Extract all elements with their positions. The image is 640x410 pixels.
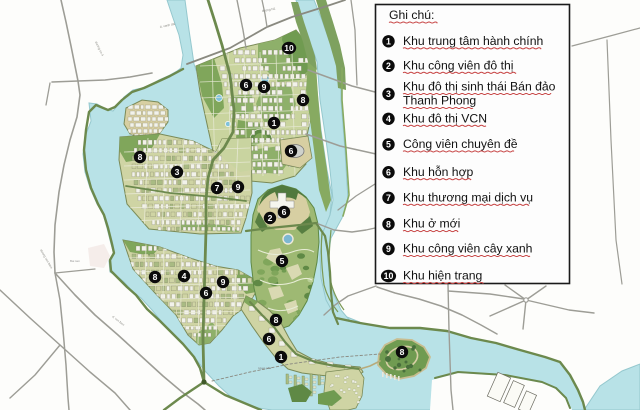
- svg-text:6: 6: [289, 146, 294, 156]
- svg-text:8: 8: [301, 95, 306, 105]
- svg-text:4: 4: [386, 114, 391, 124]
- svg-text:6: 6: [244, 80, 249, 90]
- svg-text:10: 10: [284, 43, 294, 53]
- svg-text:9: 9: [236, 182, 241, 192]
- svg-text:6: 6: [282, 207, 287, 217]
- svg-text:5: 5: [386, 140, 391, 150]
- svg-text:6: 6: [204, 288, 209, 298]
- svg-text:1: 1: [386, 37, 391, 47]
- svg-text:1: 1: [279, 352, 284, 362]
- svg-text:8: 8: [400, 347, 405, 357]
- svg-text:Khu ở mới: Khu ở mới: [403, 217, 460, 231]
- svg-text:1: 1: [272, 118, 277, 128]
- svg-text:7: 7: [386, 193, 391, 203]
- svg-text:10: 10: [384, 271, 394, 281]
- svg-text:3: 3: [386, 89, 391, 99]
- svg-text:Khu thương mại dịch vụ: Khu thương mại dịch vụ: [403, 190, 533, 204]
- svg-text:Khu công viên đô thị: Khu công viên đô thị: [403, 58, 513, 72]
- svg-text:9: 9: [221, 277, 226, 287]
- svg-text:Khu công viên cây xanh: Khu công viên cây xanh: [403, 242, 532, 256]
- svg-text:9: 9: [386, 244, 391, 254]
- svg-text:Khu trung tâm hành chính: Khu trung tâm hành chính: [403, 34, 543, 48]
- svg-text:3: 3: [175, 167, 180, 177]
- svg-text:8: 8: [138, 152, 143, 162]
- svg-text:2: 2: [386, 61, 391, 71]
- svg-text:8: 8: [274, 315, 279, 325]
- svg-text:4: 4: [182, 271, 187, 281]
- svg-text:Khu hỗn hợp: Khu hỗn hợp: [403, 164, 474, 179]
- svg-text:8: 8: [386, 219, 391, 229]
- svg-text:Bai tam: Bai tam: [70, 259, 81, 263]
- svg-text:Ghi chú:: Ghi chú:: [389, 8, 434, 22]
- svg-text:Khu đô thị sinh thái Bán đảo: Khu đô thị sinh thái Bán đảo: [403, 80, 556, 94]
- svg-text:Thanh Phong: Thanh Phong: [403, 94, 476, 108]
- svg-text:Khu đô thị VCN: Khu đô thị VCN: [403, 111, 487, 125]
- svg-text:Công viên chuyên đề: Công viên chuyên đề: [403, 137, 518, 151]
- svg-text:6: 6: [386, 167, 391, 177]
- svg-text:9: 9: [262, 82, 267, 92]
- svg-text:5: 5: [280, 256, 285, 266]
- svg-text:tuyen pha: tuyen pha: [258, 366, 272, 370]
- svg-text:Khu hiện trang: Khu hiện trang: [403, 269, 482, 283]
- svg-text:6: 6: [267, 334, 272, 344]
- svg-text:8: 8: [153, 272, 158, 282]
- svg-text:7: 7: [215, 183, 220, 193]
- svg-text:2: 2: [268, 213, 273, 223]
